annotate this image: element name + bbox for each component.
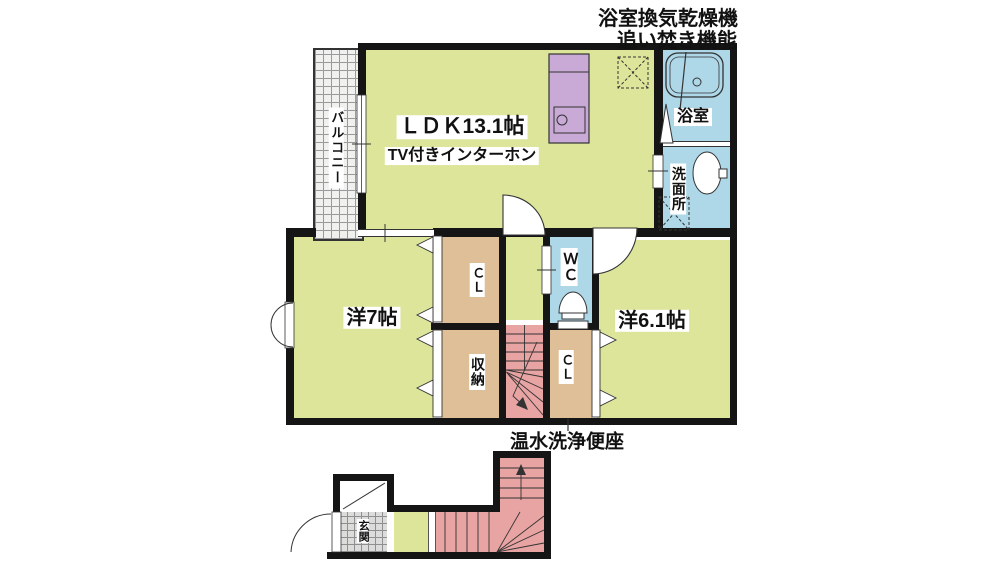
wall-segment (394, 505, 500, 512)
bath-features-note-line2: 追い焚き機能 (614, 30, 740, 52)
floorplan: 浴室換気乾燥機 追い焚き機能 バルコニー ＬＤＫ13.1帖 TV付きインターホン… (0, 0, 1000, 562)
hall-1f (394, 512, 428, 552)
wall-segment (286, 228, 294, 304)
hall-2f (506, 235, 543, 323)
balcony-label: バルコニー (329, 108, 344, 189)
storage-label: 収納 (469, 354, 485, 390)
toilet-feature-note: 温水洗浄便座 (507, 431, 627, 452)
wall-segment (358, 192, 366, 235)
ldk-label: ＬＤＫ13.1帖 (397, 115, 528, 139)
wall-segment (544, 451, 551, 559)
bedroom-right-label: 洋6.1帖 (615, 310, 689, 332)
porch (340, 481, 387, 512)
bath-features-note-line1: 浴室換気乾燥機 (595, 8, 741, 30)
ldk-intercom-note: TV付きインターホン (385, 147, 539, 165)
wall-segment (433, 228, 737, 237)
wall-segment (358, 43, 366, 96)
wall-segment (286, 228, 316, 237)
wall-segment (333, 505, 340, 512)
stairs-1f-run (434, 512, 544, 552)
closet-left-label: ＣＬ (470, 263, 485, 297)
stairs-2f-area (506, 325, 543, 418)
wall-segment (499, 235, 506, 418)
entrance-label: 玄関 (357, 519, 369, 543)
wall-segment (333, 474, 394, 481)
wall-segment (592, 235, 599, 330)
stairs-1f-upper (500, 458, 544, 512)
room-bathroom (663, 48, 730, 143)
room-ldk (365, 50, 655, 230)
hall-stairs-divider (428, 512, 436, 552)
washroom-label: 洗面所 (670, 164, 686, 215)
wall-segment (550, 323, 599, 330)
front-door-icon (291, 512, 341, 552)
casement-window-icon (271, 302, 294, 348)
bathroom-label: 浴室 (674, 108, 712, 126)
closet-right-label: ＣＬ (559, 350, 574, 384)
wall-segment (286, 346, 294, 425)
wall-segment (493, 451, 500, 512)
wall-segment (387, 474, 394, 512)
wall-segment (654, 43, 663, 235)
wc-label: ＷＣ (561, 248, 578, 286)
wall-segment (327, 552, 551, 559)
wall-segment (543, 235, 550, 418)
bedroom-left-label: 洋7帖 (343, 307, 400, 329)
wall-segment (431, 323, 500, 330)
wall-segment (286, 418, 737, 425)
